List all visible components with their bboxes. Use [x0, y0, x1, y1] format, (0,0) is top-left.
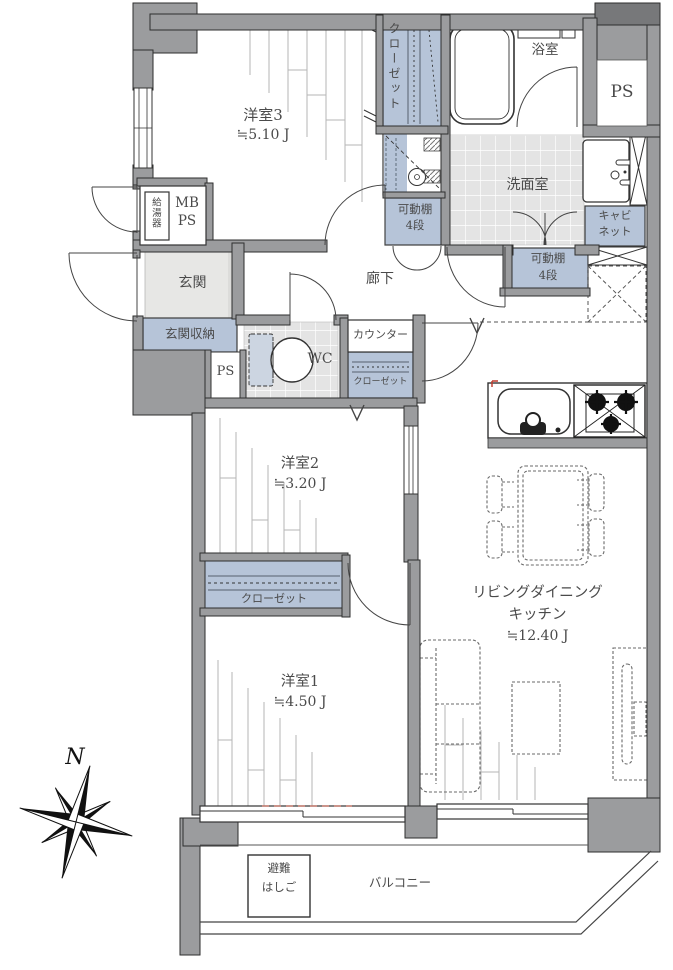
wc-door: [290, 272, 336, 320]
duct-strip: [630, 130, 647, 205]
meter-box-line2: PS: [168, 213, 206, 230]
entrance-door: [69, 253, 137, 321]
bedroom1-label: 洋室1: [225, 673, 375, 691]
bathroom-door: [517, 67, 577, 127]
ldk-window: [437, 804, 588, 819]
washbasin: [583, 140, 629, 202]
compass-north-label: N: [60, 744, 90, 772]
washroom-label: 洗面室: [480, 177, 575, 195]
compass-rose: [6, 752, 147, 893]
bathroom-label: 浴室: [510, 42, 580, 59]
bedroom2-label: 洋室2: [225, 455, 375, 473]
balcony-label: バルコニー: [355, 875, 445, 891]
shelf1-doors: [393, 246, 441, 270]
bedroom1-window: [200, 806, 405, 822]
ldk-label-1: リビングダイニング: [455, 584, 620, 602]
meter-box-door: [92, 187, 137, 233]
bedroom3-size: ≒5.10 J: [188, 127, 338, 145]
closet-top-label: クローゼット: [386, 22, 401, 112]
shelf2-line2: 4段: [508, 268, 588, 282]
water-heater-label: 給湯器: [149, 197, 161, 229]
toilet-tank: [249, 334, 273, 386]
bedroom2-size: ≒3.20 J: [225, 476, 375, 494]
closet-wc-label: クローゼット: [346, 377, 415, 388]
ps-top-label: PS: [597, 82, 647, 103]
shelf2-line1: 可動棚: [508, 251, 588, 265]
closet-bedroom2-label: クローゼット: [205, 592, 343, 606]
closet-wc-box: [348, 352, 413, 398]
ldk-entry-door: [447, 247, 505, 307]
floorplan: 洋室3 ≒5.10 J クローゼット 浴室 PS 洗面室 給湯器 MB PS 可…: [0, 0, 673, 970]
shelf1-line1: 可動棚: [387, 202, 443, 216]
wc-label: WC: [300, 351, 340, 369]
escape-ladder-line2: はしご: [249, 880, 309, 894]
coffee-table: [512, 682, 560, 754]
shelf1-line2: 4段: [387, 218, 443, 232]
bedroom2-door: [422, 323, 478, 381]
cabinet-line2: ネット: [585, 225, 645, 239]
ldk-flooring: [445, 705, 535, 800]
entrance-storage-label: 玄関収納: [144, 326, 236, 342]
sofa: [420, 640, 480, 792]
bedroom2-interior-window: [404, 426, 418, 494]
entrance-label: 玄関: [150, 275, 235, 293]
escape-ladder-line1: 避難: [249, 861, 309, 875]
bedroom3-door: [325, 185, 385, 245]
bedroom3-window: [134, 88, 152, 168]
tv: [622, 664, 632, 764]
chair: [487, 476, 502, 513]
chair: [487, 521, 502, 558]
tv-board: [613, 648, 649, 780]
ldk-size: ≒12.40 J: [455, 628, 620, 646]
hallway-label: 廊下: [340, 271, 420, 289]
counter-label: カウンター: [348, 328, 413, 342]
bathtub: [450, 24, 514, 124]
door-stop-mark: [470, 318, 484, 333]
meter-box-line1: MB: [168, 195, 206, 212]
bedroom1-door: [348, 563, 410, 625]
chair: [589, 474, 604, 511]
cabinet-line1: キャビ: [585, 209, 645, 223]
ldk-label-2: キッチン: [455, 606, 620, 624]
bedroom3-label: 洋室3: [188, 106, 338, 125]
ps-small-label: PS: [210, 364, 241, 380]
bedroom1-size: ≒4.50 J: [225, 694, 375, 712]
chair: [589, 519, 604, 556]
